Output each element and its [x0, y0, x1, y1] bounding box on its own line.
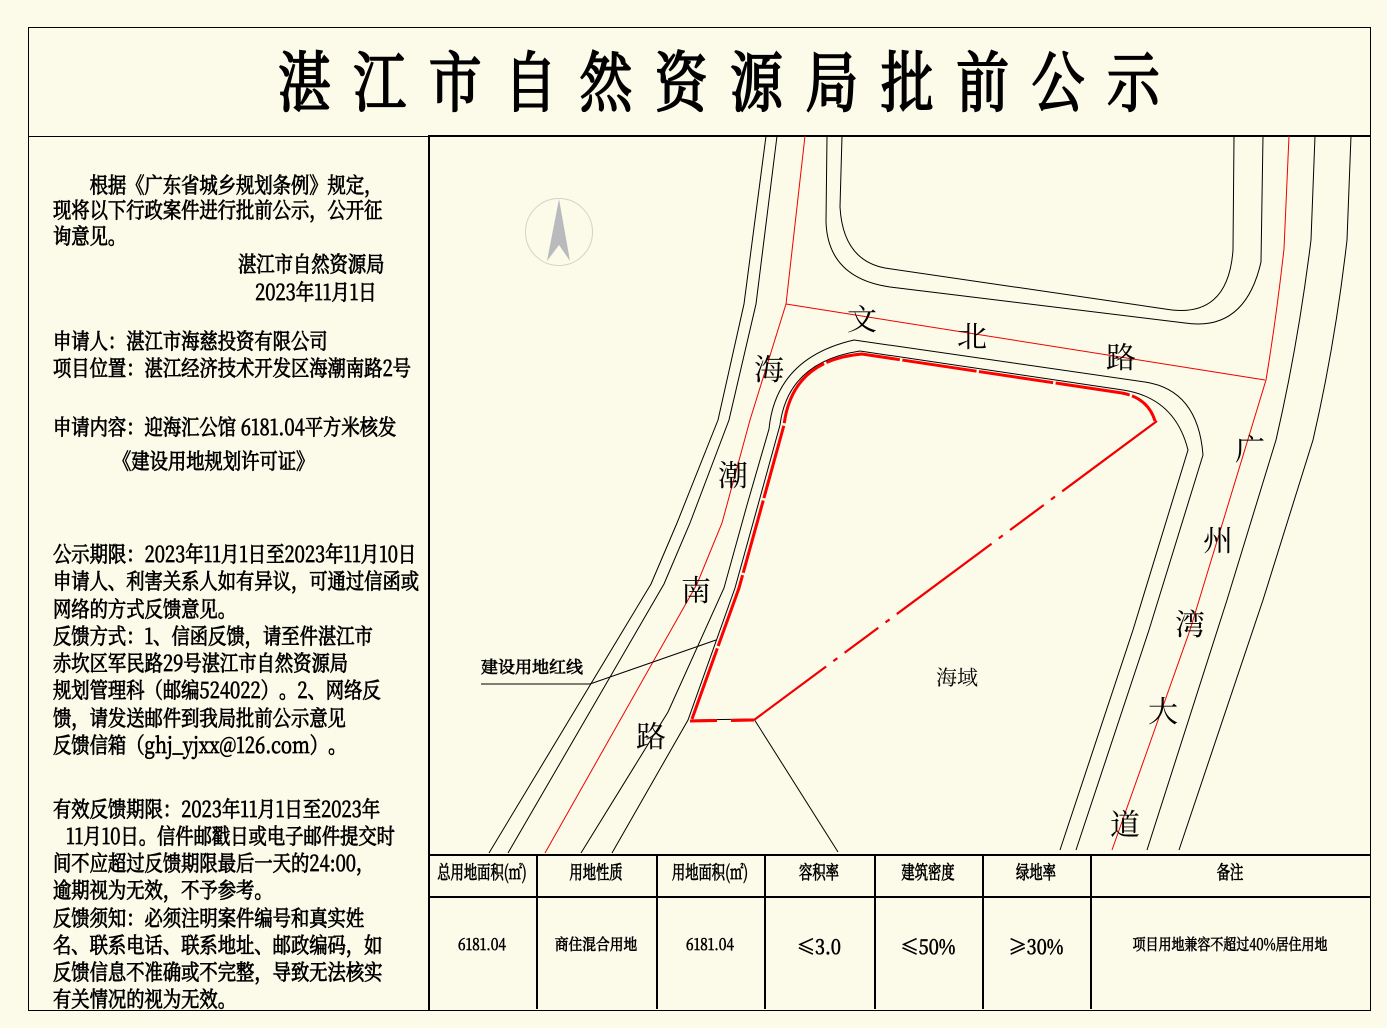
svg-text:湾: 湾: [1175, 600, 1205, 644]
svg-text:道: 道: [1110, 800, 1140, 844]
svg-text:海: 海: [754, 345, 784, 389]
svg-text:北: 北: [957, 312, 987, 356]
svg-text:建设用地红线: 建设用地红线: [481, 653, 584, 678]
svg-text:广: 广: [1235, 425, 1265, 469]
svg-text:文: 文: [847, 295, 877, 339]
svg-text:州: 州: [1203, 516, 1233, 560]
svg-text:路: 路: [636, 712, 666, 756]
svg-text:路: 路: [1106, 333, 1136, 377]
svg-text:南: 南: [681, 566, 711, 610]
svg-text:海域: 海域: [936, 662, 978, 692]
svg-text:潮: 潮: [718, 451, 748, 495]
svg-text:大: 大: [1148, 687, 1178, 731]
